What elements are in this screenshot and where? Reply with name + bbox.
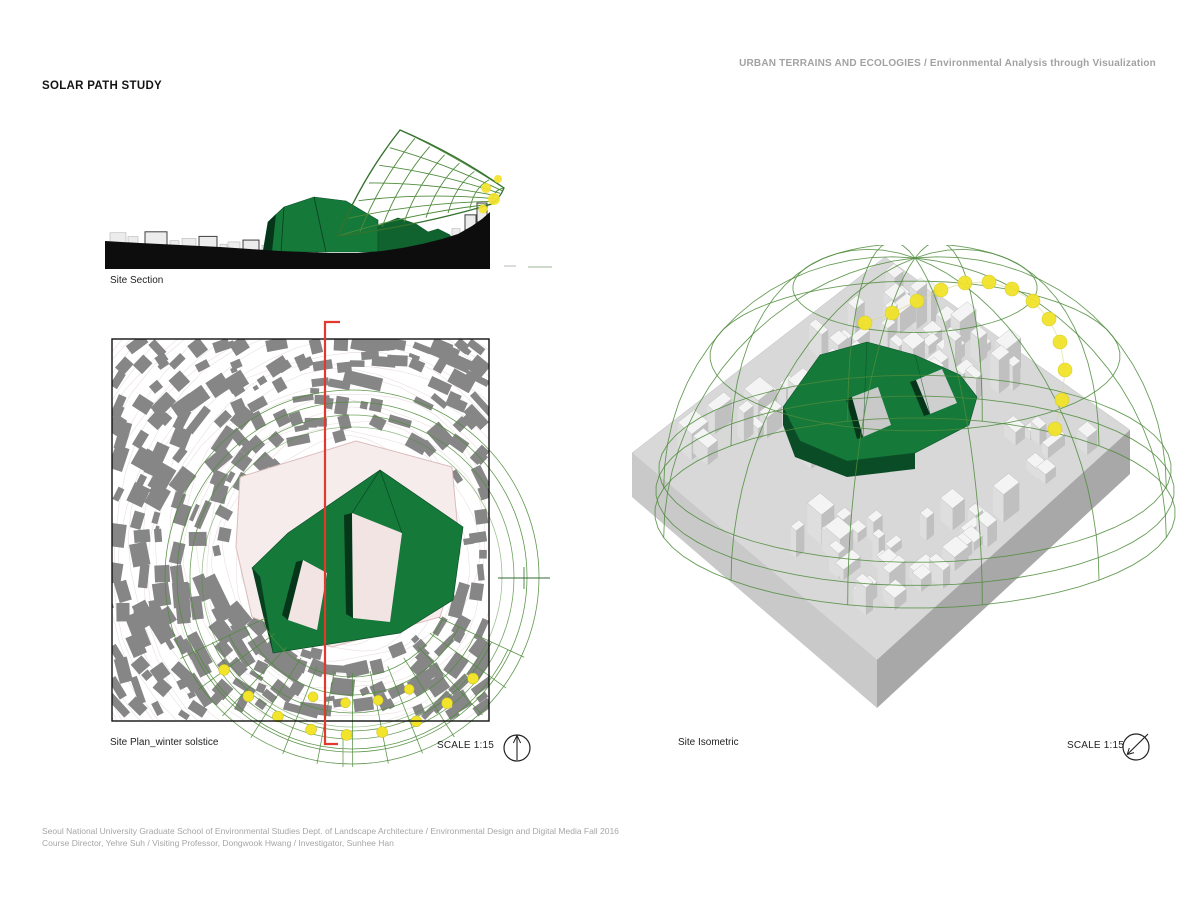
iso-scale-label: SCALE 1:15 (1067, 740, 1124, 751)
credits-line2: Course Director, Yehre Suh / Visiting Pr… (42, 838, 619, 850)
north-arrow-icon (501, 730, 533, 764)
site-isometric-drawing (615, 245, 1190, 725)
plan-scale-label: SCALE 1:15 (437, 740, 494, 751)
section-layers (105, 130, 552, 269)
iso-label: Site Isometric (678, 737, 739, 748)
credits-line1: Seoul National University Graduate Schoo… (42, 826, 619, 838)
header-course-title: URBAN TERRAINS AND ECOLOGIES / Environme… (739, 58, 1156, 69)
iso-layers (632, 257, 1130, 708)
view-direction-icon (1119, 729, 1153, 763)
section-label: Site Section (110, 275, 163, 286)
page-title: SOLAR PATH STUDY (42, 80, 162, 92)
credits: Seoul National University Graduate Schoo… (42, 826, 619, 850)
presentation-sheet: { "header": { "right_text": "URBAN TERRA… (0, 0, 1200, 900)
plan-label: Site Plan_winter solstice (110, 737, 218, 748)
site-section-drawing (100, 108, 560, 283)
site-plan-drawing (100, 315, 560, 775)
